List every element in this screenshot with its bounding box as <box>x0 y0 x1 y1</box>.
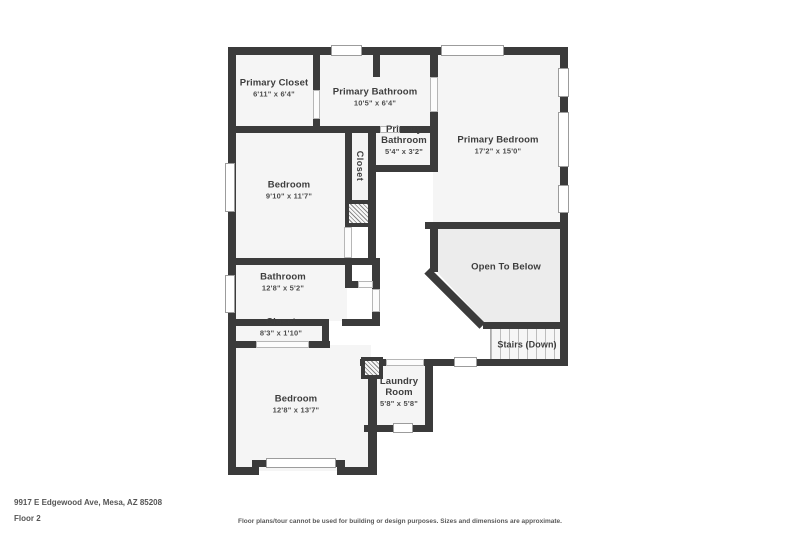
room-name: Laundry Room <box>371 376 427 398</box>
window <box>266 458 336 468</box>
room-label-primary-closet: Primary Closet 6'11" x 6'4" <box>240 77 308 98</box>
wall <box>483 322 568 329</box>
wall <box>425 222 568 229</box>
room-dims: 6'11" x 6'4" <box>240 90 308 99</box>
room-label-closet-low: Closet 8'3" x 1'10" <box>260 316 302 337</box>
room-name: Bedroom <box>266 179 312 190</box>
room-name: Closet <box>260 316 302 327</box>
window <box>393 423 413 433</box>
room-name: Primary Bathroom <box>375 124 433 146</box>
open-to-below-area <box>437 229 564 325</box>
room-dims: 5'4" x 3'2" <box>375 147 433 156</box>
wall <box>368 165 433 172</box>
wall <box>322 319 329 348</box>
address-text: 9917 E Edgewood Ave, Mesa, AZ 85208 <box>14 498 162 507</box>
room-label-primary-bathroom-wc: Primary Bathroom 5'4" x 3'2" <box>375 124 433 156</box>
room-name: Primary Closet <box>240 77 308 88</box>
wall <box>228 258 380 265</box>
wall <box>228 47 236 475</box>
wall <box>476 359 568 366</box>
wall <box>345 258 352 288</box>
wall <box>373 47 380 77</box>
window <box>558 112 569 167</box>
room-label-laundry: Laundry Room 5'8" x 5'8" <box>371 376 427 408</box>
wall <box>430 47 438 77</box>
room-label-primary-bathroom: Primary Bathroom 10'5" x 6'4" <box>333 86 417 107</box>
wall <box>228 47 568 55</box>
window <box>225 275 235 313</box>
door-opening <box>344 227 352 258</box>
room-dims: 8'3" x 1'10" <box>260 329 302 338</box>
room-name: Primary Bedroom <box>457 134 538 145</box>
room-label-hall-closet: Closet <box>355 151 365 182</box>
window <box>558 185 569 213</box>
wall <box>345 126 352 204</box>
room-dims: 9'10" x 11'7" <box>266 192 312 201</box>
wall <box>372 258 380 289</box>
room-label-primary-bedroom: Primary Bedroom 17'2" x 15'0" <box>457 134 538 155</box>
room-label-open-to-below: Open To Below <box>471 261 541 272</box>
room-dims: 12'8" x 13'7" <box>273 406 320 415</box>
window <box>225 163 235 212</box>
door-opening <box>386 359 424 366</box>
wall <box>252 460 259 475</box>
room-name: Bedroom <box>273 393 320 404</box>
wall <box>338 460 345 475</box>
window <box>441 45 504 56</box>
room-dims: 12'8" x 5'2" <box>260 284 306 293</box>
room-name: Bathroom <box>260 271 306 282</box>
wall <box>228 126 380 133</box>
room-label-bathroom: Bathroom 12'8" x 5'2" <box>260 271 306 292</box>
room-name: Stairs (Down) <box>497 340 556 351</box>
window <box>331 45 362 56</box>
room-dims: 10'5" x 6'4" <box>333 99 417 108</box>
wall <box>313 119 320 133</box>
door-opening <box>430 77 438 112</box>
wall <box>313 47 320 90</box>
wall <box>430 225 438 272</box>
room-label-bedroom-mid: Bedroom 9'10" x 11'7" <box>266 179 312 200</box>
room-name: Primary Bathroom <box>333 86 417 97</box>
door-opening <box>256 341 309 348</box>
wall <box>372 312 380 326</box>
chase-hatch <box>345 200 372 227</box>
window <box>558 68 569 97</box>
window <box>454 357 477 367</box>
room-label-stairs: Stairs (Down) <box>497 340 556 351</box>
room-name: Open To Below <box>471 261 541 272</box>
door-opening <box>372 289 380 312</box>
room-dims: 17'2" x 15'0" <box>457 147 538 156</box>
door-opening <box>358 281 373 288</box>
disclaimer-text: Floor plans/tour cannot be used for buil… <box>0 518 800 525</box>
floor-plan: Primary Closet 6'11" x 6'4" Primary Bath… <box>0 0 800 533</box>
room-dims: 5'8" x 5'8" <box>371 399 427 408</box>
door-opening <box>313 90 320 119</box>
room-label-bedroom-low: Bedroom 12'8" x 13'7" <box>273 393 320 414</box>
